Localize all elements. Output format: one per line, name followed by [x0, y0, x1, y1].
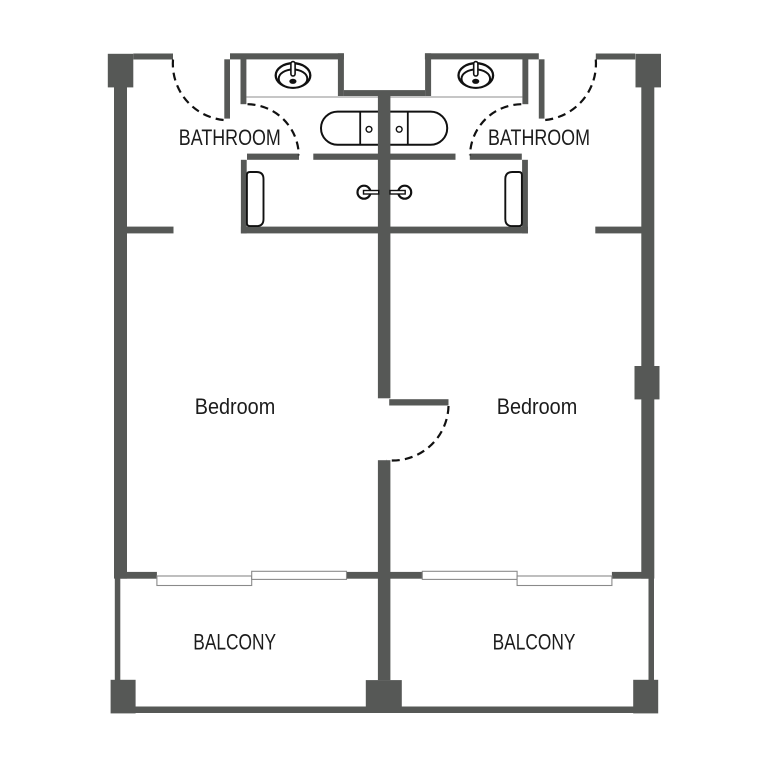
svg-text:Bedroom: Bedroom: [195, 394, 276, 419]
svg-text:BALCONY: BALCONY: [193, 630, 276, 655]
svg-text:Bedroom: Bedroom: [497, 394, 578, 419]
svg-text:BATHROOM: BATHROOM: [179, 125, 281, 150]
svg-text:BALCONY: BALCONY: [493, 630, 576, 655]
svg-text:BATHROOM: BATHROOM: [488, 125, 590, 150]
